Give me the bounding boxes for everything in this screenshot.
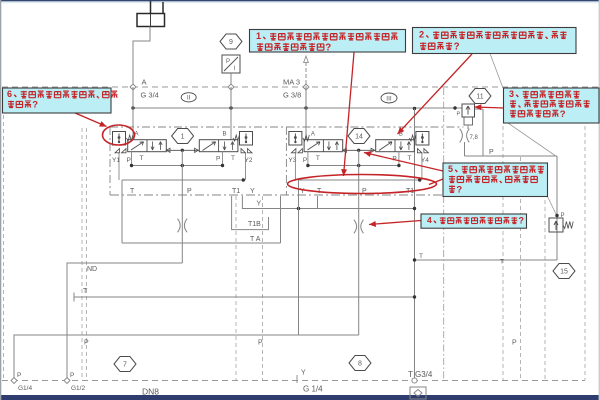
svg-text:T: T xyxy=(130,188,135,195)
svg-text:7: 7 xyxy=(123,362,127,369)
svg-text:15: 15 xyxy=(560,269,568,276)
svg-text:?: ? xyxy=(456,185,462,196)
svg-text:Y: Y xyxy=(257,201,262,208)
svg-text:Y: Y xyxy=(250,188,255,195)
svg-text:MA 3: MA 3 xyxy=(283,78,300,87)
svg-text:Y: Y xyxy=(301,370,306,377)
svg-text:?: ? xyxy=(560,109,566,120)
svg-text:P: P xyxy=(216,156,220,163)
svg-text:T: T xyxy=(407,155,411,162)
svg-text:B: B xyxy=(223,132,227,138)
svg-text:P: P xyxy=(70,372,74,379)
svg-text:P: P xyxy=(127,157,131,164)
svg-text:T1B: T1B xyxy=(248,221,261,228)
svg-text:II: II xyxy=(187,95,191,102)
svg-text:T: T xyxy=(83,288,88,295)
svg-text:7,8: 7,8 xyxy=(470,135,479,141)
svg-text:11: 11 xyxy=(476,94,483,101)
svg-text:G1/4: G1/4 xyxy=(18,385,32,392)
svg-text:5: 5 xyxy=(448,164,453,174)
svg-text:1: 1 xyxy=(256,31,261,41)
svg-text:6: 6 xyxy=(7,89,12,99)
svg-text:P: P xyxy=(84,340,89,347)
svg-text:8: 8 xyxy=(358,361,362,368)
svg-text:P: P xyxy=(457,112,461,118)
svg-text:?: ? xyxy=(325,42,331,53)
svg-text:P: P xyxy=(187,188,192,195)
svg-text:G 3/8: G 3/8 xyxy=(283,91,301,100)
svg-text:T: T xyxy=(231,155,235,162)
svg-text:?: ? xyxy=(32,100,38,111)
svg-text:P: P xyxy=(258,340,263,347)
svg-text:9: 9 xyxy=(229,39,233,46)
svg-text:?: ? xyxy=(454,42,460,53)
svg-text:T A: T A xyxy=(250,236,261,243)
svg-text:P: P xyxy=(226,59,230,65)
svg-text:T: T xyxy=(140,155,144,162)
svg-text:P: P xyxy=(303,157,307,164)
svg-text:T: T xyxy=(316,155,320,162)
svg-text:2: 2 xyxy=(419,30,424,40)
svg-text:T G3/4: T G3/4 xyxy=(408,370,433,379)
svg-text:G 3/4: G 3/4 xyxy=(141,91,159,100)
svg-text:ND: ND xyxy=(87,266,97,273)
svg-text:III: III xyxy=(386,95,392,102)
svg-text:?: ? xyxy=(519,216,525,226)
svg-text:1: 1 xyxy=(181,134,185,141)
svg-text:P: P xyxy=(489,149,494,156)
svg-text:DN8: DN8 xyxy=(142,387,159,397)
svg-text:P: P xyxy=(17,372,21,379)
svg-text:T: T xyxy=(419,253,423,260)
svg-text:A: A xyxy=(142,78,147,87)
svg-text:G1/2: G1/2 xyxy=(71,385,85,392)
svg-text:A: A xyxy=(311,132,315,138)
svg-text:G 1/4: G 1/4 xyxy=(303,385,323,394)
svg-text:P: P xyxy=(512,340,517,347)
svg-text:3: 3 xyxy=(509,89,514,99)
svg-text:4: 4 xyxy=(427,215,432,225)
svg-text:T1: T1 xyxy=(232,188,240,195)
svg-text:14: 14 xyxy=(355,134,363,141)
svg-text:T: T xyxy=(500,259,504,266)
